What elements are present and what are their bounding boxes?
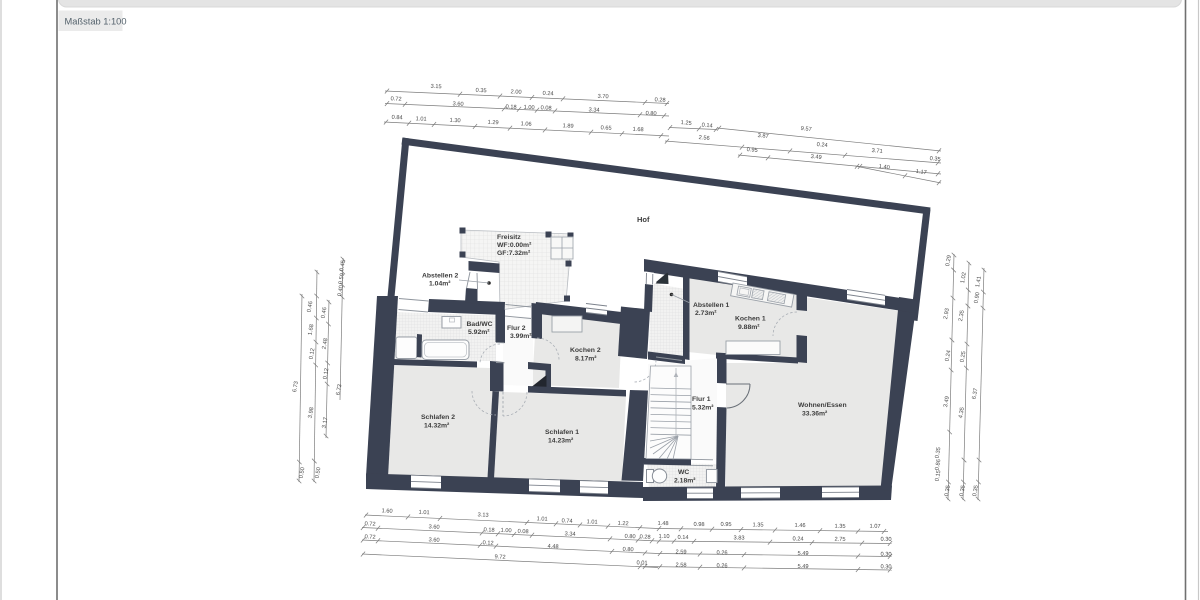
svg-text:1.00: 1.00 xyxy=(500,528,511,534)
svg-text:0.72: 0.72 xyxy=(364,534,375,540)
svg-text:Wohnen/Essen: Wohnen/Essen xyxy=(798,402,847,409)
svg-text:0.24: 0.24 xyxy=(792,536,803,542)
svg-text:1.30: 1.30 xyxy=(449,118,460,125)
svg-text:3.49: 3.49 xyxy=(810,154,822,161)
svg-text:3.70: 3.70 xyxy=(597,94,608,100)
svg-text:3.34: 3.34 xyxy=(564,531,575,537)
svg-text:0.74: 0.74 xyxy=(561,518,572,524)
svg-text:2.73m²: 2.73m² xyxy=(695,310,717,317)
svg-text:1.00: 1.00 xyxy=(523,105,534,111)
svg-text:Schlafen 1: Schlafen 1 xyxy=(545,429,579,436)
svg-text:3.60: 3.60 xyxy=(452,101,463,107)
svg-text:Kochen 2: Kochen 2 xyxy=(570,347,601,354)
svg-text:3.60: 3.60 xyxy=(428,537,439,543)
svg-text:0.12: 0.12 xyxy=(482,540,493,546)
svg-text:1.48: 1.48 xyxy=(657,521,668,527)
svg-text:WF:0.00m²: WF:0.00m² xyxy=(497,242,532,249)
svg-text:3.87: 3.87 xyxy=(757,133,769,140)
svg-text:14.23m²: 14.23m² xyxy=(548,438,574,445)
svg-text:1.10: 1.10 xyxy=(658,534,669,540)
svg-text:Kochen 1: Kochen 1 xyxy=(735,316,766,323)
svg-text:0.24: 0.24 xyxy=(542,91,553,97)
svg-text:5.49: 5.49 xyxy=(797,551,808,557)
svg-text:Abstellen 1: Abstellen 1 xyxy=(693,302,729,309)
svg-text:1.01: 1.01 xyxy=(415,116,426,123)
svg-text:1.89: 1.89 xyxy=(562,123,573,130)
svg-text:0.24: 0.24 xyxy=(816,142,828,149)
svg-text:5.49: 5.49 xyxy=(797,564,808,570)
svg-text:0.26: 0.26 xyxy=(716,550,727,556)
svg-text:0.95: 0.95 xyxy=(746,147,758,154)
svg-text:0.01: 0.01 xyxy=(636,560,647,566)
svg-text:0.35: 0.35 xyxy=(929,156,941,163)
svg-text:14.32m²: 14.32m² xyxy=(424,423,450,430)
svg-text:Flur 2: Flur 2 xyxy=(507,325,526,332)
svg-text:GF:7.32m²: GF:7.32m² xyxy=(497,250,531,257)
svg-text:0.14: 0.14 xyxy=(677,535,688,541)
svg-text:1.35: 1.35 xyxy=(834,524,845,530)
svg-text:9.88m²: 9.88m² xyxy=(738,324,760,331)
svg-text:1.06: 1.06 xyxy=(520,121,531,128)
svg-text:0.08: 0.08 xyxy=(540,105,551,111)
svg-text:1.01: 1.01 xyxy=(536,516,547,522)
svg-text:0.28: 0.28 xyxy=(639,534,650,540)
svg-text:0.14: 0.14 xyxy=(701,123,713,130)
svg-text:3.83: 3.83 xyxy=(733,535,744,541)
svg-text:1.25: 1.25 xyxy=(680,120,692,127)
svg-text:0.30: 0.30 xyxy=(880,537,891,543)
svg-text:3.15: 3.15 xyxy=(430,84,441,90)
svg-text:0.30: 0.30 xyxy=(880,564,891,570)
svg-text:1.68: 1.68 xyxy=(632,127,643,134)
svg-text:1.04m²: 1.04m² xyxy=(429,281,451,288)
svg-text:0.95: 0.95 xyxy=(720,522,731,528)
svg-text:3.34: 3.34 xyxy=(588,107,599,113)
svg-text:33.36m²: 33.36m² xyxy=(802,411,828,418)
svg-text:Flur 1: Flur 1 xyxy=(692,396,711,403)
svg-text:1.29: 1.29 xyxy=(487,120,498,127)
svg-text:5.32m²: 5.32m² xyxy=(692,405,714,412)
svg-text:0.65: 0.65 xyxy=(600,125,611,132)
svg-text:5.92m²: 5.92m² xyxy=(468,329,490,336)
svg-text:Schlafen 2: Schlafen 2 xyxy=(421,414,455,421)
svg-text:0.84: 0.84 xyxy=(391,115,402,122)
svg-text:0.30: 0.30 xyxy=(880,552,891,558)
svg-text:2.58: 2.58 xyxy=(675,563,686,569)
svg-text:0.35: 0.35 xyxy=(475,88,486,94)
svg-text:1.22: 1.22 xyxy=(617,521,628,527)
svg-text:1.46: 1.46 xyxy=(794,523,805,529)
svg-text:1.60: 1.60 xyxy=(381,508,392,514)
svg-text:3.60: 3.60 xyxy=(428,524,439,530)
svg-text:1.01: 1.01 xyxy=(586,519,597,525)
svg-text:1.01: 1.01 xyxy=(418,510,429,516)
svg-text:2.56: 2.56 xyxy=(698,135,710,142)
svg-text:1.35: 1.35 xyxy=(752,522,763,528)
svg-text:0.98: 0.98 xyxy=(693,522,704,528)
svg-text:3.13: 3.13 xyxy=(477,512,488,518)
svg-text:2.75: 2.75 xyxy=(834,537,845,543)
svg-text:8.17m²: 8.17m² xyxy=(575,356,597,363)
svg-text:Maßstab 1:100: Maßstab 1:100 xyxy=(65,17,127,27)
svg-text:2.59: 2.59 xyxy=(675,550,686,556)
svg-text:0.26: 0.26 xyxy=(716,563,727,569)
svg-text:4.48: 4.48 xyxy=(547,544,558,550)
svg-text:3.99m²: 3.99m² xyxy=(510,333,532,340)
svg-text:0.18: 0.18 xyxy=(505,104,516,110)
svg-text:Hof: Hof xyxy=(637,215,650,224)
svg-text:0.72: 0.72 xyxy=(390,96,401,102)
svg-text:2.18m²: 2.18m² xyxy=(674,478,696,485)
svg-text:3.71: 3.71 xyxy=(871,148,883,155)
svg-text:Bad/WC: Bad/WC xyxy=(467,321,493,328)
svg-text:1.07: 1.07 xyxy=(869,524,880,530)
svg-text:9.72: 9.72 xyxy=(494,554,505,560)
svg-text:0.28: 0.28 xyxy=(654,97,665,103)
svg-text:0.80: 0.80 xyxy=(624,534,635,540)
svg-text:WC: WC xyxy=(678,469,689,476)
svg-text:Abstellen 2: Abstellen 2 xyxy=(422,273,458,280)
svg-text:Freisitz: Freisitz xyxy=(497,234,521,241)
svg-text:0.80: 0.80 xyxy=(645,111,656,117)
svg-text:9.57: 9.57 xyxy=(800,126,812,133)
svg-text:0.18: 0.18 xyxy=(483,527,494,533)
svg-text:0.72: 0.72 xyxy=(364,521,375,527)
svg-text:2.00: 2.00 xyxy=(510,89,521,95)
svg-text:0.08: 0.08 xyxy=(517,529,528,535)
svg-text:0.80: 0.80 xyxy=(622,547,633,553)
